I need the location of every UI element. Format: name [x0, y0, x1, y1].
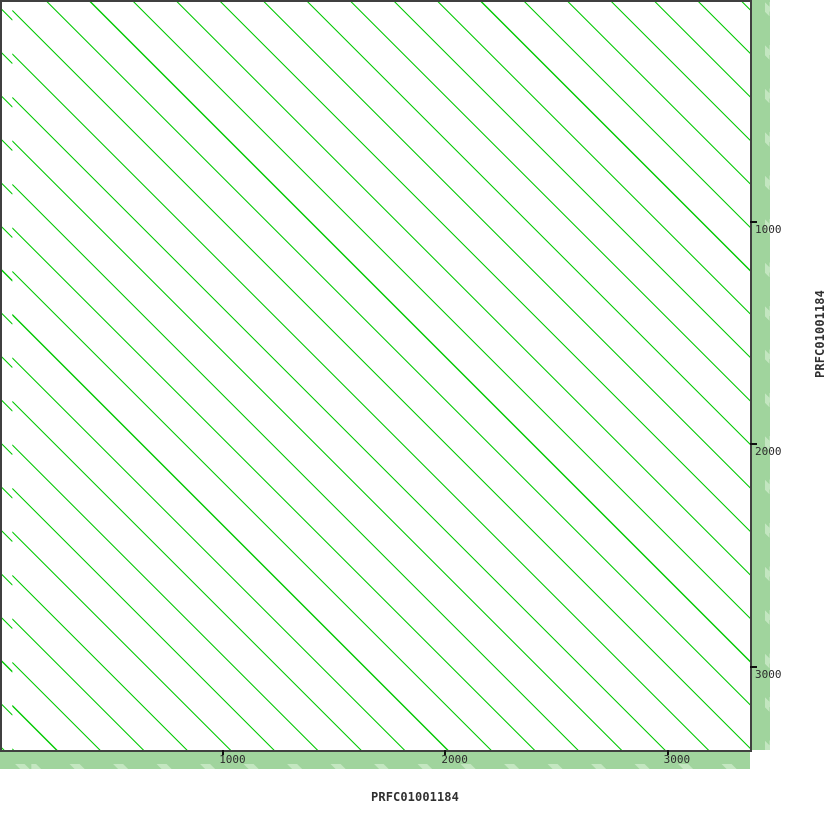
y-tick-label: 1000: [755, 224, 782, 235]
x-tick-label: 1000: [219, 754, 246, 765]
x-axis-index-bar: [0, 752, 750, 769]
x-tick-label: 3000: [664, 754, 691, 765]
y-axis-bar-notches: [765, 0, 770, 750]
dotplot-canvas[interactable]: [0, 0, 752, 752]
y-axis-title: PRFC01001184: [813, 290, 827, 378]
x-axis-bar-notches: [0, 764, 750, 769]
x-tick-label: 2000: [441, 754, 468, 765]
y-axis-index-bar: [752, 0, 770, 750]
y-tick-label: 2000: [755, 446, 782, 457]
x-axis-title: PRFC01001184: [0, 790, 830, 804]
y-tick-label: 3000: [755, 669, 782, 680]
dotplot-viewer: 100020003000 100020003000 PRFC01001184 P…: [0, 0, 830, 830]
